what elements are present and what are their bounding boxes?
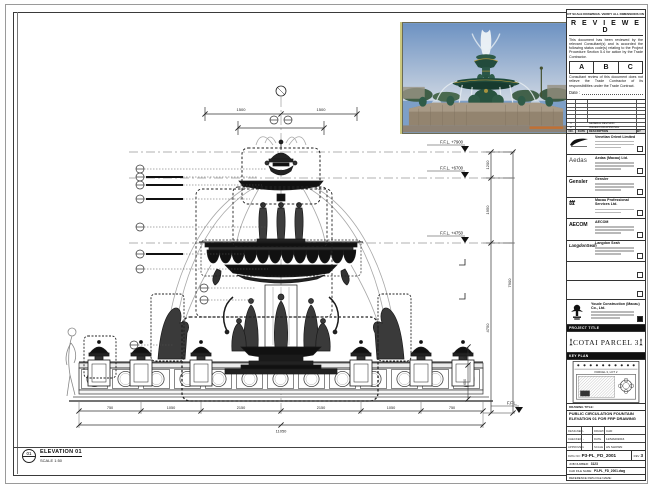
human-scale-figure xyxy=(66,328,76,396)
svg-text:750: 750 xyxy=(449,406,455,410)
key-plan-graphic: PARCEL 3, LOT 2 xyxy=(570,361,642,403)
svg-text:1500: 1500 xyxy=(317,107,327,112)
drawn-value: CAD xyxy=(605,427,645,434)
rev-value: 3 xyxy=(640,453,643,458)
revision-table-header: NO. DATE DESCRIPTION BY xyxy=(567,129,645,133)
designed-label: DESIGNED xyxy=(567,427,582,434)
consultant-aecom: AECOM AECOM xyxy=(567,219,645,240)
reference-photo xyxy=(402,22,570,134)
consultant-checkbox[interactable] xyxy=(637,272,643,278)
fountain-structure xyxy=(158,140,404,374)
aedas-logo: Aedas xyxy=(569,158,587,164)
reviewed-title: R E V I E W E D xyxy=(569,19,643,36)
venetian-logo-swoosh-icon xyxy=(569,136,593,153)
svg-text:F.F.L. +6700: F.F.L. +6700 xyxy=(440,166,464,171)
consultant-checkbox[interactable] xyxy=(637,210,643,216)
drawing-title: PUBLIC CIRCULATION FOUNTAIN ELEVATION 01… xyxy=(567,411,645,427)
mps-logo: ttt xyxy=(569,200,575,207)
svg-text:1050: 1050 xyxy=(167,406,175,410)
revision-rows: 1 GENERAL REVISION 2 ISSUED FOR APPROVAL xyxy=(567,122,645,129)
svg-text:1500: 1500 xyxy=(237,107,247,112)
checked-value: - xyxy=(582,435,593,442)
svg-text:2150: 2150 xyxy=(237,406,245,410)
consultant-langdon-seah: LangdonSeah Langdon Seah xyxy=(567,241,645,261)
svg-text:1950: 1950 xyxy=(485,205,490,215)
reviewed-paragraph-2: Consultant review of this document does … xyxy=(569,75,643,88)
date-value: 12/MAR/2016 xyxy=(605,435,645,442)
drawing-sheet: 1500 1500 F.F.L. +7900 F.F.L. +6700 F.F.… xyxy=(0,0,650,488)
cad-file-row: CAD FILE NAME: P3-PL_FD_2001.dwg xyxy=(567,468,645,475)
date-fill-line[interactable] xyxy=(582,90,643,95)
ornament-right-icon xyxy=(639,334,643,350)
sheet-note-strip: DO NOT SCALE DRAWINGS. VERIFY ALL DIMENS… xyxy=(567,10,645,18)
key-plan: PARCEL 3, LOT 2 xyxy=(567,360,645,404)
elevation-title: ELEVATION 01 xyxy=(40,449,82,457)
empty-consultant-box xyxy=(567,281,645,300)
status-code-a[interactable]: A xyxy=(570,62,594,73)
photo-watermark xyxy=(529,126,563,128)
consultant-checkbox[interactable] xyxy=(637,232,643,238)
revision-table: 1 GENERAL REVISION 2 ISSUED FOR APPROVAL… xyxy=(567,100,645,134)
svg-text:7900: 7900 xyxy=(507,278,512,288)
dwg-no-label: DWG NO: xyxy=(567,454,582,458)
svg-text:2150: 2150 xyxy=(317,406,325,410)
scale-label: SCALE xyxy=(593,443,605,450)
consultant-gensler: Gensler Gensler xyxy=(567,177,645,198)
svg-text:F.F.L. +7900: F.F.L. +7900 xyxy=(440,140,464,145)
reference-dwg-row: REFERENCE DWG FILE NAME: xyxy=(567,475,645,480)
gensler-logo: Gensler xyxy=(569,179,588,185)
dwg-no-row: DWG NO: P3-PL_FD_2001 REV 3 xyxy=(567,451,645,461)
elevation-title-label: 01 ELEVATION 01 SCALE 1:50 xyxy=(22,449,82,463)
svg-text:11050: 11050 xyxy=(276,429,288,434)
consultant-checkbox[interactable] xyxy=(637,168,643,174)
approved-label: APPROVED xyxy=(567,443,582,450)
checked-label: CHECKED xyxy=(567,435,582,442)
project-title-banner: COTAI PARCEL 3 xyxy=(567,332,645,353)
status-code-boxes: A B C xyxy=(569,61,643,74)
stamp-date-line: Date : xyxy=(569,90,643,95)
contractor-checkbox[interactable] xyxy=(637,316,643,322)
consultant-checkbox[interactable] xyxy=(637,291,643,297)
svg-text:F.F.L. +4750: F.F.L. +4750 xyxy=(440,231,464,236)
date-label: Date : xyxy=(569,90,580,95)
reviewed-paragraph-1: This document has been reviewed by the r… xyxy=(569,38,643,60)
svg-text:F.F.L.: F.F.L. xyxy=(507,401,517,406)
consultant-checkbox[interactable] xyxy=(637,146,643,152)
svg-text:450: 450 xyxy=(463,353,467,359)
rev-label: REV xyxy=(634,454,640,458)
consultant-mps: ttt Macau Professional Services Ltd. xyxy=(567,198,645,219)
fountain-photo-graphic xyxy=(403,23,569,133)
drawn-label: DRAWN xyxy=(593,427,605,434)
consultant-checkbox[interactable] xyxy=(637,189,643,195)
dwg-no-value: P3-PL_FD_2001 xyxy=(582,453,631,458)
elevation-bubble: 01 xyxy=(22,449,36,463)
project-title-strip: PROJECT TITLE xyxy=(567,325,645,332)
approved-value: - xyxy=(582,443,593,450)
svg-text:1200: 1200 xyxy=(485,160,490,170)
job-number-value: 3123 xyxy=(591,462,598,466)
title-block: DO NOT SCALE DRAWINGS. VERIFY ALL DIMENS… xyxy=(566,9,646,481)
contractor-box: Youde Construction (Macau) Co., Ltd. xyxy=(567,300,645,325)
consultant-list: Venetian Orient Limited Aedas Aedas (Mac… xyxy=(567,134,645,262)
elevation-scale: SCALE 1:50 xyxy=(40,458,82,463)
svg-text:PARCEL 3, LOT 2: PARCEL 3, LOT 2 xyxy=(595,370,618,374)
cad-file-label: CAD FILE NAME: xyxy=(569,469,592,473)
designed-value: - xyxy=(582,427,593,434)
date-label: DATE xyxy=(593,435,605,442)
svg-text:750: 750 xyxy=(107,406,113,410)
drawing-title-label: DRAWING TITLE: xyxy=(567,404,645,411)
key-plan-strip: KEY PLAN xyxy=(567,353,645,360)
status-code-c[interactable]: C xyxy=(619,62,642,73)
aecom-logo: AECOM xyxy=(569,222,587,228)
svg-text:4750: 4750 xyxy=(485,323,490,333)
project-name: COTAI PARCEL 3 xyxy=(573,338,639,347)
scale-value: AS SHOWN xyxy=(605,443,645,450)
consultant-venetian: Venetian Orient Limited xyxy=(567,134,645,155)
svg-text:1050: 1050 xyxy=(387,406,395,410)
svg-text:650: 650 xyxy=(463,379,467,385)
empty-consultant-box xyxy=(567,262,645,281)
approval-fields: DESIGNED - DRAWN CAD CHECKED - DATE 12/M… xyxy=(567,427,645,451)
reviewed-stamp: R E V I E W E D This document has been r… xyxy=(567,18,645,100)
contractor-emblem-icon xyxy=(569,302,589,322)
cad-file-value: P3-PL_FD_2001.dwg xyxy=(594,469,625,473)
consultant-checkbox[interactable] xyxy=(637,253,643,259)
bottom-dimensions xyxy=(76,402,485,428)
consultant-aedas: Aedas Aedas (Macau) Ltd. xyxy=(567,155,645,176)
job-number-label: JOB NUMBER: xyxy=(569,462,589,466)
job-number-row: JOB NUMBER: 3123 xyxy=(567,461,645,468)
reference-dwg-label: REFERENCE DWG FILE NAME: xyxy=(569,476,612,480)
status-code-b[interactable]: B xyxy=(594,62,618,73)
